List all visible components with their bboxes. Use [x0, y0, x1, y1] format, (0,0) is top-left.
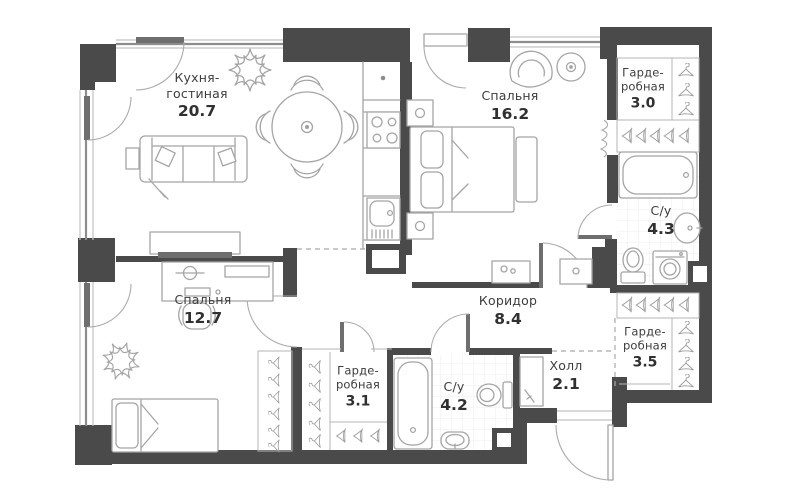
cabinet-icon	[520, 357, 543, 406]
washing-machine-icon	[653, 251, 687, 284]
armchair-icon	[510, 51, 552, 87]
balcony-door-kitchen-left	[84, 96, 131, 140]
room-area: 4.3	[647, 220, 674, 239]
stove-icon	[367, 112, 400, 148]
room-label-corridor: Коридор 8.4	[479, 293, 537, 329]
room-area: 3.0	[621, 95, 665, 113]
window-top-bedroom	[510, 37, 600, 47]
bedroom-second-furniture	[97, 262, 292, 452]
room-area: 16.2	[481, 105, 538, 124]
floorplan-drawing	[0, 0, 800, 496]
balcony-door-bedroom-left	[84, 283, 131, 327]
door-bathroom-second	[431, 314, 470, 352]
console-icon	[492, 261, 530, 283]
room-label-kitchen-living: Кухня- гостиная 20.7	[166, 70, 227, 122]
plant-icon	[97, 337, 145, 385]
chair-icon	[344, 111, 358, 143]
closet-hangers	[258, 351, 292, 452]
bathtub-icon	[619, 152, 697, 198]
room-name: С/у	[647, 203, 674, 219]
room-name: робная	[336, 378, 380, 392]
sofa-icon	[126, 136, 247, 199]
room-name: Спальня	[481, 88, 538, 104]
room-label-bedroom-second: Спальня 12.7	[174, 292, 231, 328]
room-area: 3.5	[623, 354, 667, 372]
room-name: Холл	[550, 358, 583, 374]
tv-icon	[158, 252, 232, 258]
door-bedroom-second	[247, 296, 297, 347]
room-label-wardrobe-top: Гарде- робная 3.0	[621, 65, 665, 112]
kitchen-sink-icon	[367, 198, 400, 240]
room-label-wardrobe-bottom: Гарде- робная 3.1	[336, 363, 380, 410]
kitchen-counter	[363, 62, 400, 248]
room-name: робная	[623, 339, 667, 353]
room-area: 20.7	[166, 102, 227, 121]
chair-icon	[256, 111, 270, 143]
sink-icon	[441, 432, 469, 449]
room-name: Кухня-	[166, 70, 227, 86]
door-wardrobe-bottom	[340, 322, 374, 352]
toilet-icon	[621, 248, 645, 283]
chair-icon	[291, 76, 323, 90]
toilet-icon	[477, 382, 512, 408]
door-bathroom-main	[578, 205, 612, 239]
single-bed-icon	[112, 399, 218, 452]
tv-stand-icon	[150, 232, 240, 258]
room-area: 3.1	[336, 393, 380, 411]
room-name: Гарде-	[621, 65, 665, 79]
side-table-icon	[557, 53, 585, 81]
room-area: 8.4	[479, 310, 537, 329]
room-name: С/у	[440, 379, 467, 395]
room-name: Спальня	[174, 292, 231, 308]
entrance-door	[556, 411, 613, 480]
room-label-wardrobe-right: Гарде- робная 3.5	[623, 324, 667, 371]
plant-icon	[229, 49, 271, 91]
nightstand-icon	[407, 213, 433, 239]
dresser-icon	[560, 259, 592, 284]
room-name: Коридор	[479, 293, 537, 309]
room-area: 12.7	[174, 309, 231, 328]
balcony-door-bedroom-top	[424, 34, 467, 88]
room-label-bedroom-main: Спальня 16.2	[481, 88, 538, 124]
room-name: робная	[621, 80, 665, 94]
bench-icon	[516, 137, 537, 202]
room-label-bathroom-main: С/у 4.3	[647, 203, 674, 239]
bathtub-icon	[394, 358, 432, 449]
curtain-icon	[601, 120, 608, 157]
room-name: Гарде-	[336, 363, 380, 377]
floor-plan: Кухня- гостиная 20.7 Спальня 16.2 Гарде-…	[0, 0, 800, 496]
room-name: гостиная	[166, 86, 227, 102]
chair-icon	[291, 164, 323, 178]
room-label-hall: Холл 2.1	[550, 358, 583, 394]
nightstand-icon	[407, 100, 433, 126]
room-area: 2.1	[550, 375, 583, 394]
dining-table-icon	[256, 76, 358, 178]
room-label-bathroom-second: С/у 4.2	[440, 379, 467, 415]
room-area: 4.2	[440, 396, 467, 415]
double-bed-icon	[410, 127, 537, 212]
hall-furniture	[520, 357, 543, 406]
side-table-icon	[126, 148, 139, 169]
room-name: Гарде-	[623, 324, 667, 338]
